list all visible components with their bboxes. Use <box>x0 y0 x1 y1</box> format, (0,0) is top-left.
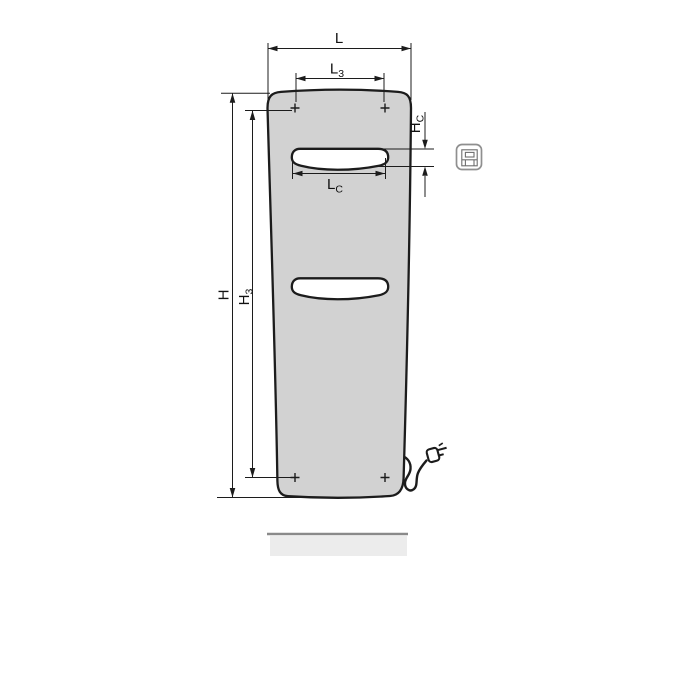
diagram-canvas: L L3 H <box>0 0 700 700</box>
electric-radiator-icon <box>457 145 482 170</box>
floor-shadow-body <box>270 536 407 556</box>
label-L: L <box>335 30 343 47</box>
floor-shadow <box>267 534 408 556</box>
radiator-dimension-drawing: L L3 H <box>0 0 700 700</box>
label-L3: L3 <box>330 61 344 81</box>
power-cord <box>402 442 450 490</box>
label-H3: H3 <box>236 289 256 306</box>
towel-slot-top <box>292 149 388 170</box>
towel-slot-middle <box>292 278 388 299</box>
power-plug-icon <box>425 442 449 462</box>
label-H: H <box>216 290 233 301</box>
